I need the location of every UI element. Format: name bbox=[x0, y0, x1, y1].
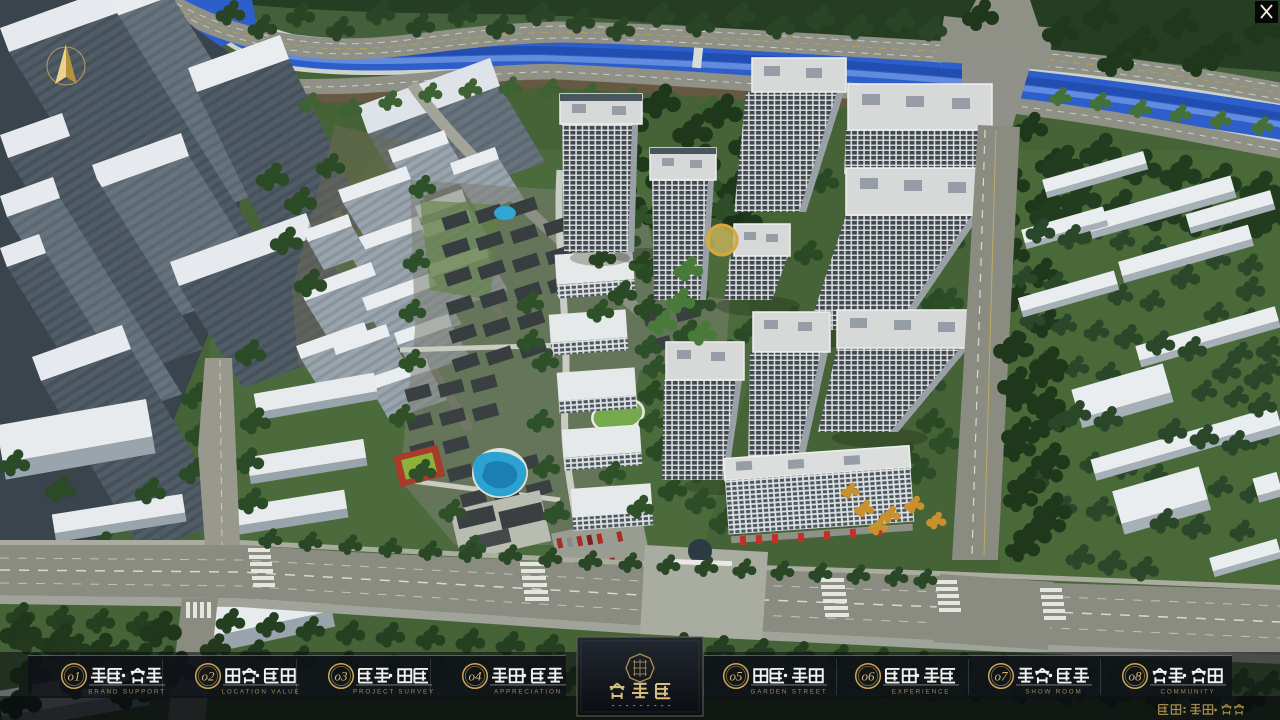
svg-text:COMMUNITY: COMMUNITY bbox=[1160, 689, 1215, 696]
svg-text:GARDEN STREET: GARDEN STREET bbox=[751, 689, 828, 696]
svg-text:APPRECIATION: APPRECIATION bbox=[494, 689, 562, 696]
svg-text:o3: o3 bbox=[335, 669, 349, 684]
svg-text:SHOW ROOM: SHOW ROOM bbox=[1025, 689, 1082, 696]
svg-text:BRAND SUPPORT: BRAND SUPPORT bbox=[88, 689, 166, 696]
svg-text:o5: o5 bbox=[730, 669, 744, 684]
svg-text:o8: o8 bbox=[1129, 669, 1143, 684]
svg-text:o4: o4 bbox=[469, 669, 483, 684]
svg-text:o6: o6 bbox=[862, 669, 876, 684]
svg-text:o7: o7 bbox=[995, 669, 1009, 684]
svg-text:LOCATION VALUE: LOCATION VALUE bbox=[222, 689, 301, 696]
svg-text:o2: o2 bbox=[202, 669, 216, 684]
svg-text:PROJECT SURVEY: PROJECT SURVEY bbox=[353, 689, 435, 696]
svg-text:EXPERIENCE: EXPERIENCE bbox=[892, 689, 951, 696]
svg-text:o1: o1 bbox=[68, 669, 81, 684]
